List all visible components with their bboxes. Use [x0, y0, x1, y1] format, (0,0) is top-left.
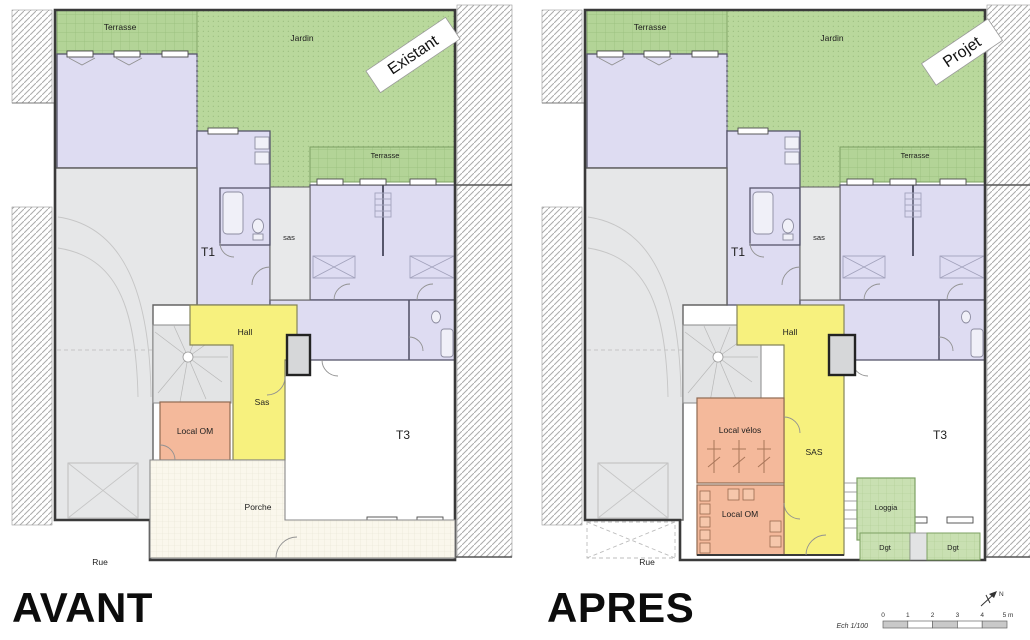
label-sas-upper: sas: [813, 233, 825, 242]
plan-avant: Existant Terrasse Jardin Terrasse T1 sas…: [12, 5, 512, 567]
label-local-om: Local OM: [177, 426, 213, 436]
label-terrasse-right: Terrasse: [371, 151, 400, 160]
label-t3: T3: [933, 428, 947, 442]
scale-caption: Ech 1/100: [836, 623, 868, 630]
label-rue: Rue: [92, 557, 108, 567]
elevator: [829, 335, 855, 375]
scale-bar: Ech 1/100 0 1 2 3 4 5 m: [836, 612, 1013, 630]
label-rue: Rue: [639, 557, 655, 567]
dgt-connector: [910, 533, 927, 560]
title-avant: AVANT: [12, 584, 153, 631]
label-local-velos: Local vélos: [719, 425, 762, 435]
north-arrow-icon: N: [981, 591, 1004, 606]
canopy-projection: [587, 522, 675, 558]
label-hall: Hall: [783, 327, 798, 337]
room-porche: [150, 460, 455, 558]
label-jardin: Jardin: [290, 33, 313, 43]
label-jardin: Jardin: [820, 33, 843, 43]
room-local-velos: [697, 398, 784, 483]
label-local-om: Local OM: [722, 509, 758, 519]
steps: [844, 483, 857, 528]
label-terrasse-right: Terrasse: [901, 151, 930, 160]
label-terrasse-top: Terrasse: [634, 22, 667, 32]
label-hall: Hall: [238, 327, 253, 337]
label-sas: Sas: [255, 397, 270, 407]
label-sas-upper: sas: [283, 233, 295, 242]
floorplan-comparison: Existant Terrasse Jardin Terrasse T1 sas…: [0, 0, 1030, 640]
plan-apres: Projet Terrasse Jardin Terrasse T1 sas H…: [542, 5, 1030, 567]
label-t1: T1: [731, 245, 745, 259]
scale-tick-5: 5 m: [1003, 612, 1014, 619]
north-label: N: [999, 591, 1004, 598]
label-t1: T1: [201, 245, 215, 259]
title-apres: APRES: [547, 584, 694, 631]
scale-tick-3: 3: [956, 612, 960, 619]
label-dgt-right: Dgt: [947, 543, 960, 552]
floorplan-svg: Existant Terrasse Jardin Terrasse T1 sas…: [0, 0, 1030, 640]
label-terrasse-top: Terrasse: [104, 22, 137, 32]
scale-tick-1: 1: [906, 612, 910, 619]
scale-tick-2: 2: [931, 612, 935, 619]
label-sas: SAS: [805, 447, 822, 457]
elevator: [287, 335, 310, 375]
label-t3: T3: [396, 428, 410, 442]
label-porche: Porche: [245, 502, 272, 512]
label-loggia: Loggia: [875, 503, 898, 512]
label-dgt-left: Dgt: [879, 543, 892, 552]
scale-tick-0: 0: [881, 612, 885, 619]
scale-tick-4: 4: [980, 612, 984, 619]
